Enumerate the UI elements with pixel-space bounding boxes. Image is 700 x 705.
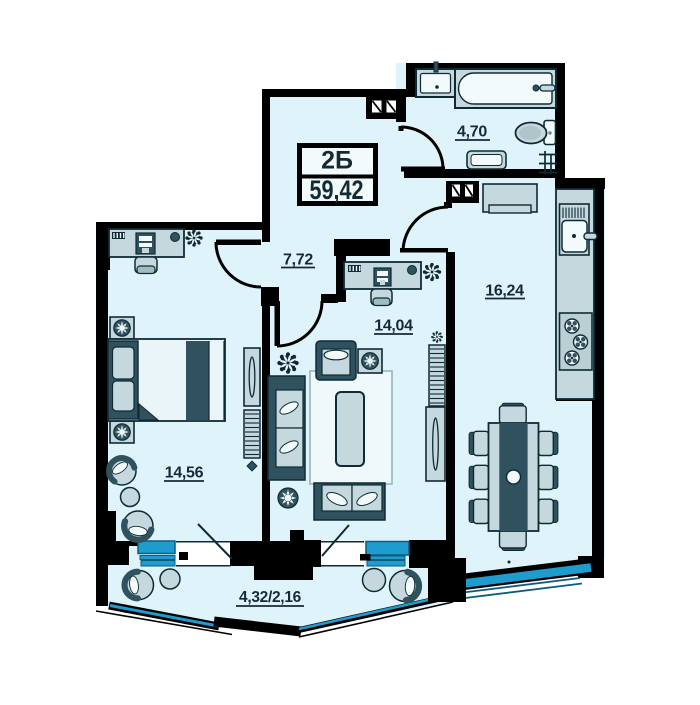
svg-text:14,04: 14,04 [374, 318, 413, 335]
svg-text:14,56: 14,56 [165, 465, 204, 482]
svg-text:2Б: 2Б [321, 147, 353, 175]
svg-text:16,24: 16,24 [485, 283, 524, 300]
svg-text:4,70: 4,70 [457, 124, 487, 141]
svg-text:7,72: 7,72 [283, 252, 313, 269]
svg-text:4,32/2,16: 4,32/2,16 [239, 589, 302, 606]
svg-text:59,42: 59,42 [309, 176, 363, 206]
